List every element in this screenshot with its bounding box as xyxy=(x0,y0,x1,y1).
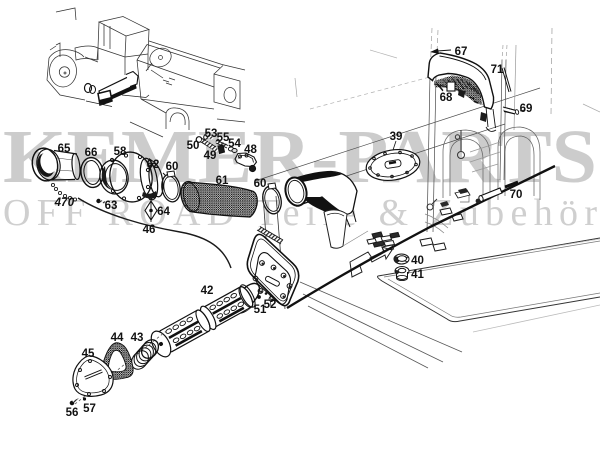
svg-text:60: 60 xyxy=(166,161,179,173)
svg-text:63: 63 xyxy=(105,200,118,212)
svg-text:64: 64 xyxy=(157,206,170,218)
svg-text:54: 54 xyxy=(228,138,241,150)
svg-text:45: 45 xyxy=(82,348,95,360)
svg-text:47: 47 xyxy=(54,197,68,209)
svg-text:50: 50 xyxy=(187,140,200,152)
svg-text:48: 48 xyxy=(244,144,257,156)
svg-text:0: 0 xyxy=(68,197,75,209)
svg-text:61: 61 xyxy=(216,175,229,187)
svg-text:68: 68 xyxy=(440,92,453,104)
svg-text:58: 58 xyxy=(114,146,127,158)
svg-text:67: 67 xyxy=(455,46,468,58)
svg-text:65: 65 xyxy=(58,143,71,155)
svg-text:43: 43 xyxy=(131,332,144,344)
svg-text:46: 46 xyxy=(143,224,156,236)
svg-text:53: 53 xyxy=(205,128,218,140)
svg-text:41: 41 xyxy=(411,269,424,281)
svg-text:49: 49 xyxy=(204,150,217,162)
svg-text:44: 44 xyxy=(111,332,124,344)
svg-text:42: 42 xyxy=(201,285,214,297)
svg-text:40: 40 xyxy=(411,255,424,267)
svg-text:69: 69 xyxy=(520,103,533,115)
svg-text:70: 70 xyxy=(510,189,523,201)
svg-text:57: 57 xyxy=(83,403,96,415)
svg-text:71: 71 xyxy=(491,64,504,76)
svg-text:56: 56 xyxy=(66,407,79,419)
svg-text:39: 39 xyxy=(390,131,403,143)
svg-text:60: 60 xyxy=(254,178,267,190)
svg-text:52: 52 xyxy=(264,299,277,311)
svg-text:62: 62 xyxy=(147,159,160,171)
svg-text:66: 66 xyxy=(85,147,98,159)
